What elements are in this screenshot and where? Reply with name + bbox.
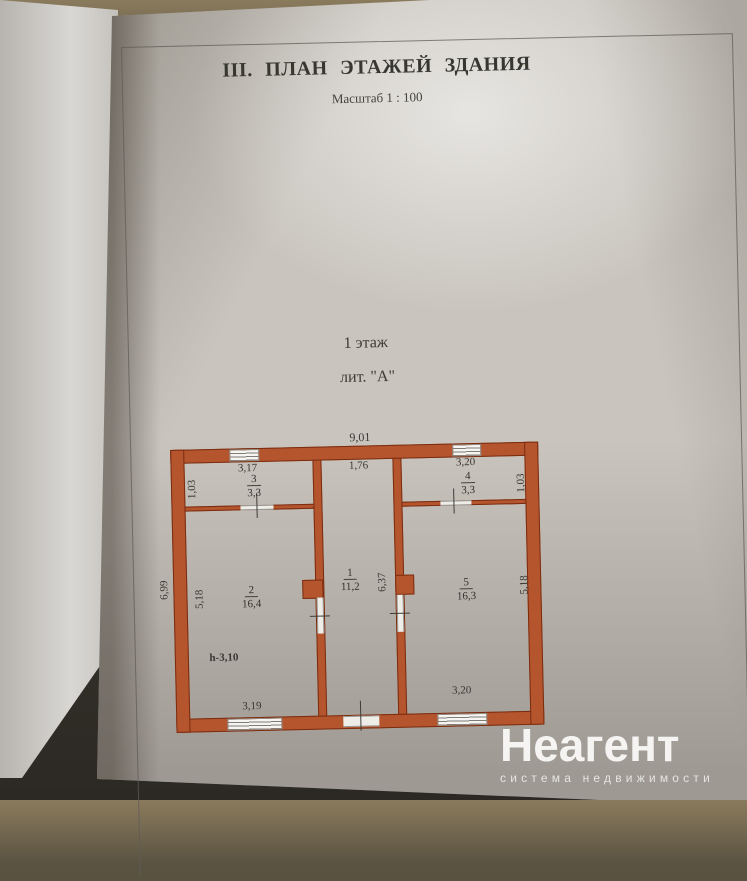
room-2-number: 2 <box>244 584 258 597</box>
room-5-label: 5 16,3 <box>456 576 476 602</box>
room-1-number: 1 <box>343 567 357 580</box>
room-4-number: 4 <box>461 470 475 483</box>
dim-left-outer: 6,99 <box>158 580 170 600</box>
ceiling-height-note: h-3,10 <box>209 651 238 664</box>
dim-room4-side: 1,03 <box>515 473 527 493</box>
dim-room3-side: 1,03 <box>186 480 198 500</box>
room-1-label: 1 11,2 <box>340 567 359 593</box>
dim-room4-top: 3,20 <box>456 456 476 468</box>
dim-bottom-left: 3,19 <box>242 700 262 712</box>
door-opening-partition-right <box>440 500 471 506</box>
liter-label: лит. "А" <box>287 367 447 389</box>
page-content: III. ПЛАН ЭТАЖЕЙ ЗДАНИЯ Масштаб 1 : 100 … <box>0 0 747 803</box>
window-symbol-bottom-left <box>227 717 282 730</box>
room-3-area: 3,3 <box>247 487 261 499</box>
watermark: Неагент система недвижимости <box>500 722 714 785</box>
room-2-label: 2 16,4 <box>242 584 262 610</box>
pilaster-left <box>302 580 323 599</box>
pilaster-right <box>395 574 414 594</box>
floor-label: 1 этаж <box>286 333 446 355</box>
room-4-label: 4 3,3 <box>461 470 475 496</box>
room-1-area: 11,2 <box>341 581 360 593</box>
dim-room2-side: 5,18 <box>193 590 205 610</box>
dim-overall-top: 9,01 <box>349 430 370 445</box>
room-3-label: 3 3,3 <box>247 473 261 499</box>
dim-corridor-side: 6,37 <box>376 572 388 592</box>
room-4-area: 3,3 <box>461 484 475 496</box>
dim-room5-side: 5,18 <box>518 575 530 595</box>
dim-bottom-right: 3,20 <box>452 684 472 696</box>
room-3-number: 3 <box>247 473 261 486</box>
window-symbol-top-right <box>452 444 481 457</box>
watermark-brand: Неагент <box>500 722 714 768</box>
room-5-area: 16,3 <box>457 590 477 602</box>
dim-corridor-top: 1,76 <box>349 459 369 471</box>
room-2-area: 16,4 <box>242 598 262 610</box>
window-symbol-bottom-right <box>437 713 487 726</box>
room-5-number: 5 <box>459 576 473 589</box>
floor-plan: 9,01 1,76 3,17 3,20 1,03 1,03 6,99 5,18 … <box>170 442 544 733</box>
door-tick-corridor-left <box>310 615 330 616</box>
watermark-tagline: система недвижимости <box>500 771 714 785</box>
window-symbol-top-left <box>229 449 259 462</box>
